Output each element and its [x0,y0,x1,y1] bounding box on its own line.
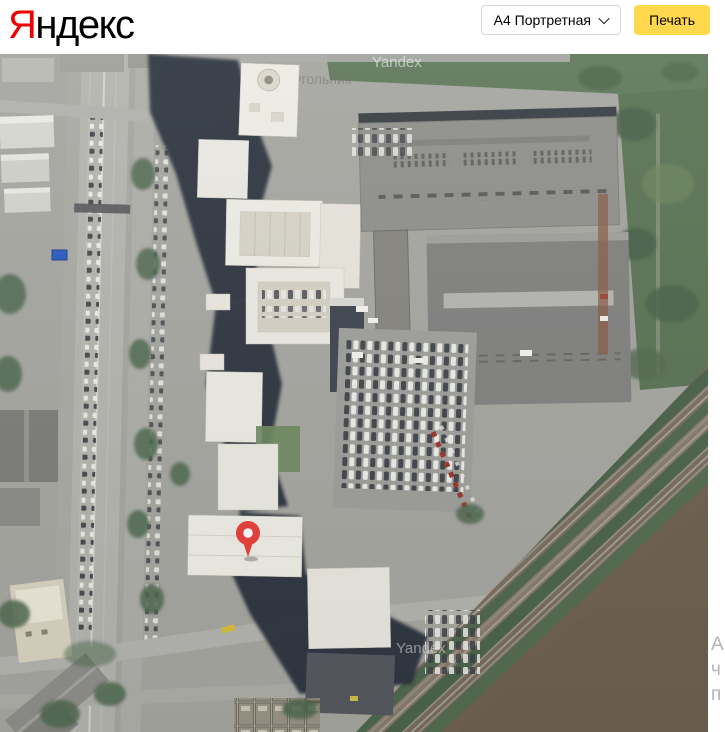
clipped-side-text: А ч п [711,632,725,710]
page-format-value: А4 Портретная [494,12,591,28]
print-page: Яндекс А4 Портретная Печать [0,0,725,732]
yandex-logo[interactable]: Яндекс [8,2,134,48]
satellite-map-image: Прямоугольник [0,54,708,732]
map-preview: Прямоугольник [0,54,708,732]
clipped-line: п [711,682,725,707]
print-button[interactable]: Печать [634,5,710,35]
chevron-down-icon [598,13,609,24]
clipped-line: ч [711,657,725,682]
clipped-line: А [711,632,725,657]
tonal-overlay [0,54,708,732]
page-format-select[interactable]: А4 Портретная [481,5,621,35]
logo-rest: ндекс [35,3,133,47]
logo-letter: Я [8,3,35,47]
